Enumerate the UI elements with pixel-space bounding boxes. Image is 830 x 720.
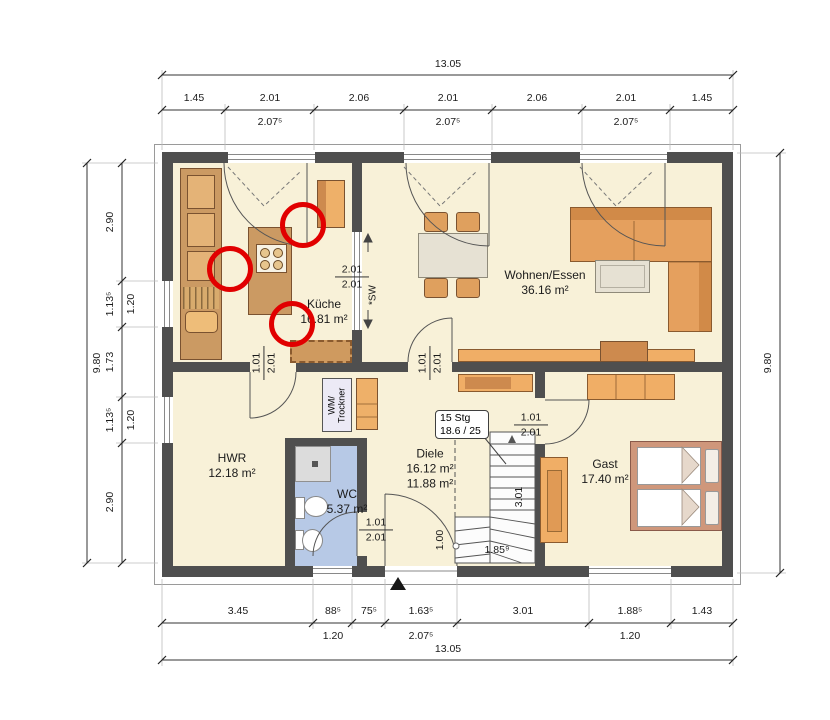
desk	[540, 457, 568, 543]
hall-sideboard-inner	[465, 377, 511, 389]
dim-left-seg: 2.90	[104, 492, 116, 512]
dining-chair	[456, 278, 480, 298]
dim-left-seg: 1.13⁵	[104, 292, 116, 317]
dim-stair-run: 3.01	[513, 487, 525, 507]
dim-bottom-sub: 1.20	[323, 630, 343, 642]
dim-gast-door: 1.012.01	[514, 411, 548, 438]
tv-sideboard	[458, 349, 695, 362]
dim-bottom-sub: 2.07⁵	[409, 630, 434, 642]
coffee-table	[595, 260, 650, 293]
sofa-main	[570, 207, 712, 262]
dim-top-seg: 2.01	[438, 92, 458, 104]
washer-dryer-label: WM/ Trockner	[327, 387, 348, 422]
dim-hwr-door: 1.012.01	[250, 346, 277, 380]
shower	[295, 446, 331, 482]
wall-right	[722, 152, 733, 577]
wall-mid-2	[296, 362, 408, 372]
cooktop	[256, 244, 287, 273]
dining-table	[418, 233, 488, 278]
window-gast	[589, 566, 671, 577]
hall-sideboard	[458, 374, 533, 392]
dim-top-sub: 2.07⁵	[614, 116, 639, 128]
pillow	[705, 491, 719, 525]
burner	[260, 260, 270, 270]
burner	[273, 248, 283, 258]
dim-stair-length: 1.85⁹	[485, 544, 510, 556]
wall-wc-left	[285, 438, 295, 566]
coffee-table-inner	[600, 265, 645, 288]
dining-chair	[456, 212, 480, 232]
dim-bottom-seg: 75⁵	[361, 605, 377, 617]
wall-kitchen-upper	[352, 163, 362, 232]
wall-gast-upper	[535, 372, 545, 398]
kitchen-sink	[185, 311, 218, 333]
dim-top-sub: 2.07⁵	[258, 116, 283, 128]
pillow	[705, 449, 719, 483]
annotation-circle-1[interactable]	[280, 202, 326, 248]
dim-bottom-seg: 1.63⁵	[409, 605, 434, 617]
dim-bottom-seg: 1.88⁵	[618, 605, 643, 617]
kitchen-unit	[187, 175, 215, 209]
desk-inner	[547, 470, 562, 532]
dim-left-seg: 1.73	[104, 352, 116, 372]
burner	[260, 248, 270, 258]
window-kitchen	[162, 281, 173, 327]
washer-dryer-box: WM/ Trockner	[322, 378, 352, 432]
dim-left-overall: 9.80	[91, 353, 103, 373]
dim-stair-width: 1.00	[434, 530, 446, 550]
dim-top-seg: 1.45	[184, 92, 204, 104]
room-label-hwr: HWR12.18 m²	[208, 451, 255, 481]
dining-chair	[424, 278, 448, 298]
room-label-wohnen-essen: Wohnen/Essen36.16 m²	[504, 268, 585, 298]
stair-spec-box: 15 Stg 18.6 / 25	[435, 410, 489, 439]
washbasin	[304, 496, 328, 517]
dining-chair	[424, 212, 448, 232]
floor-plan: WM/ Trockner	[0, 0, 830, 720]
annotation-circle-3[interactable]	[269, 301, 315, 347]
dim-kitchen-passage: 2.012.01	[335, 263, 369, 290]
terrace-door-kitchen	[228, 152, 315, 163]
entry-door	[385, 566, 457, 577]
sofa-back	[571, 208, 711, 220]
dim-living-door: 1.012.01	[416, 346, 443, 380]
window-wc	[313, 566, 352, 577]
dim-bottom-seg: 3.45	[228, 605, 248, 617]
kitchen-unit	[187, 213, 215, 247]
wardrobe	[587, 374, 675, 400]
dim-top-seg: 2.01	[616, 92, 636, 104]
dim-left-sub: 1.20	[125, 294, 137, 314]
terrace-door-living-1	[404, 152, 491, 163]
wall-mid-1	[173, 362, 250, 372]
room-label-gast: Gast17.40 m²	[581, 457, 628, 487]
dim-bottom-seg: 88⁵	[325, 605, 341, 617]
dim-top-seg: 2.06	[349, 92, 369, 104]
dim-top-seg: 2.06	[527, 92, 547, 104]
dim-left-sub: 1.20	[125, 410, 137, 430]
dim-left-seg: 2.90	[104, 212, 116, 232]
dim-bottom-seg: 1.43	[692, 605, 712, 617]
dim-bottom-seg: 3.01	[513, 605, 533, 617]
bed	[630, 441, 722, 531]
dim-top-sub: 2.07⁵	[436, 116, 461, 128]
room-label-diele: Diele16.12 m²11.88 m²	[406, 447, 453, 492]
terrace-door-living-2	[580, 152, 667, 163]
burner	[273, 260, 283, 270]
room-label-wc: WC5.37 m²	[327, 487, 368, 517]
dim-top-overall: 13.05	[435, 58, 461, 70]
dim-wc-door: 1.012.01	[359, 516, 393, 543]
wall-wc-right-lower	[357, 556, 367, 566]
wall-left	[162, 152, 173, 577]
sink-drainer	[183, 287, 219, 309]
dim-top-seg: 1.45	[692, 92, 712, 104]
wall-mid-3	[452, 362, 722, 372]
dim-bottom-overall: 13.05	[435, 643, 461, 655]
window-note-label: *SW	[367, 285, 379, 305]
wall-wc-top	[285, 438, 367, 446]
mattress	[637, 489, 701, 527]
toilet	[302, 529, 323, 552]
mattress	[637, 447, 701, 485]
window-hwr	[162, 397, 173, 443]
annotation-circle-2[interactable]	[207, 246, 253, 292]
tv	[600, 341, 648, 362]
dim-left-seg: 1.13⁵	[104, 408, 116, 433]
dim-right-overall: 9.80	[762, 353, 774, 373]
dim-bottom-sub: 1.20	[620, 630, 640, 642]
hall-cabinet-tall	[356, 378, 378, 430]
shower-drain	[312, 461, 318, 467]
dim-top-seg: 2.01	[260, 92, 280, 104]
